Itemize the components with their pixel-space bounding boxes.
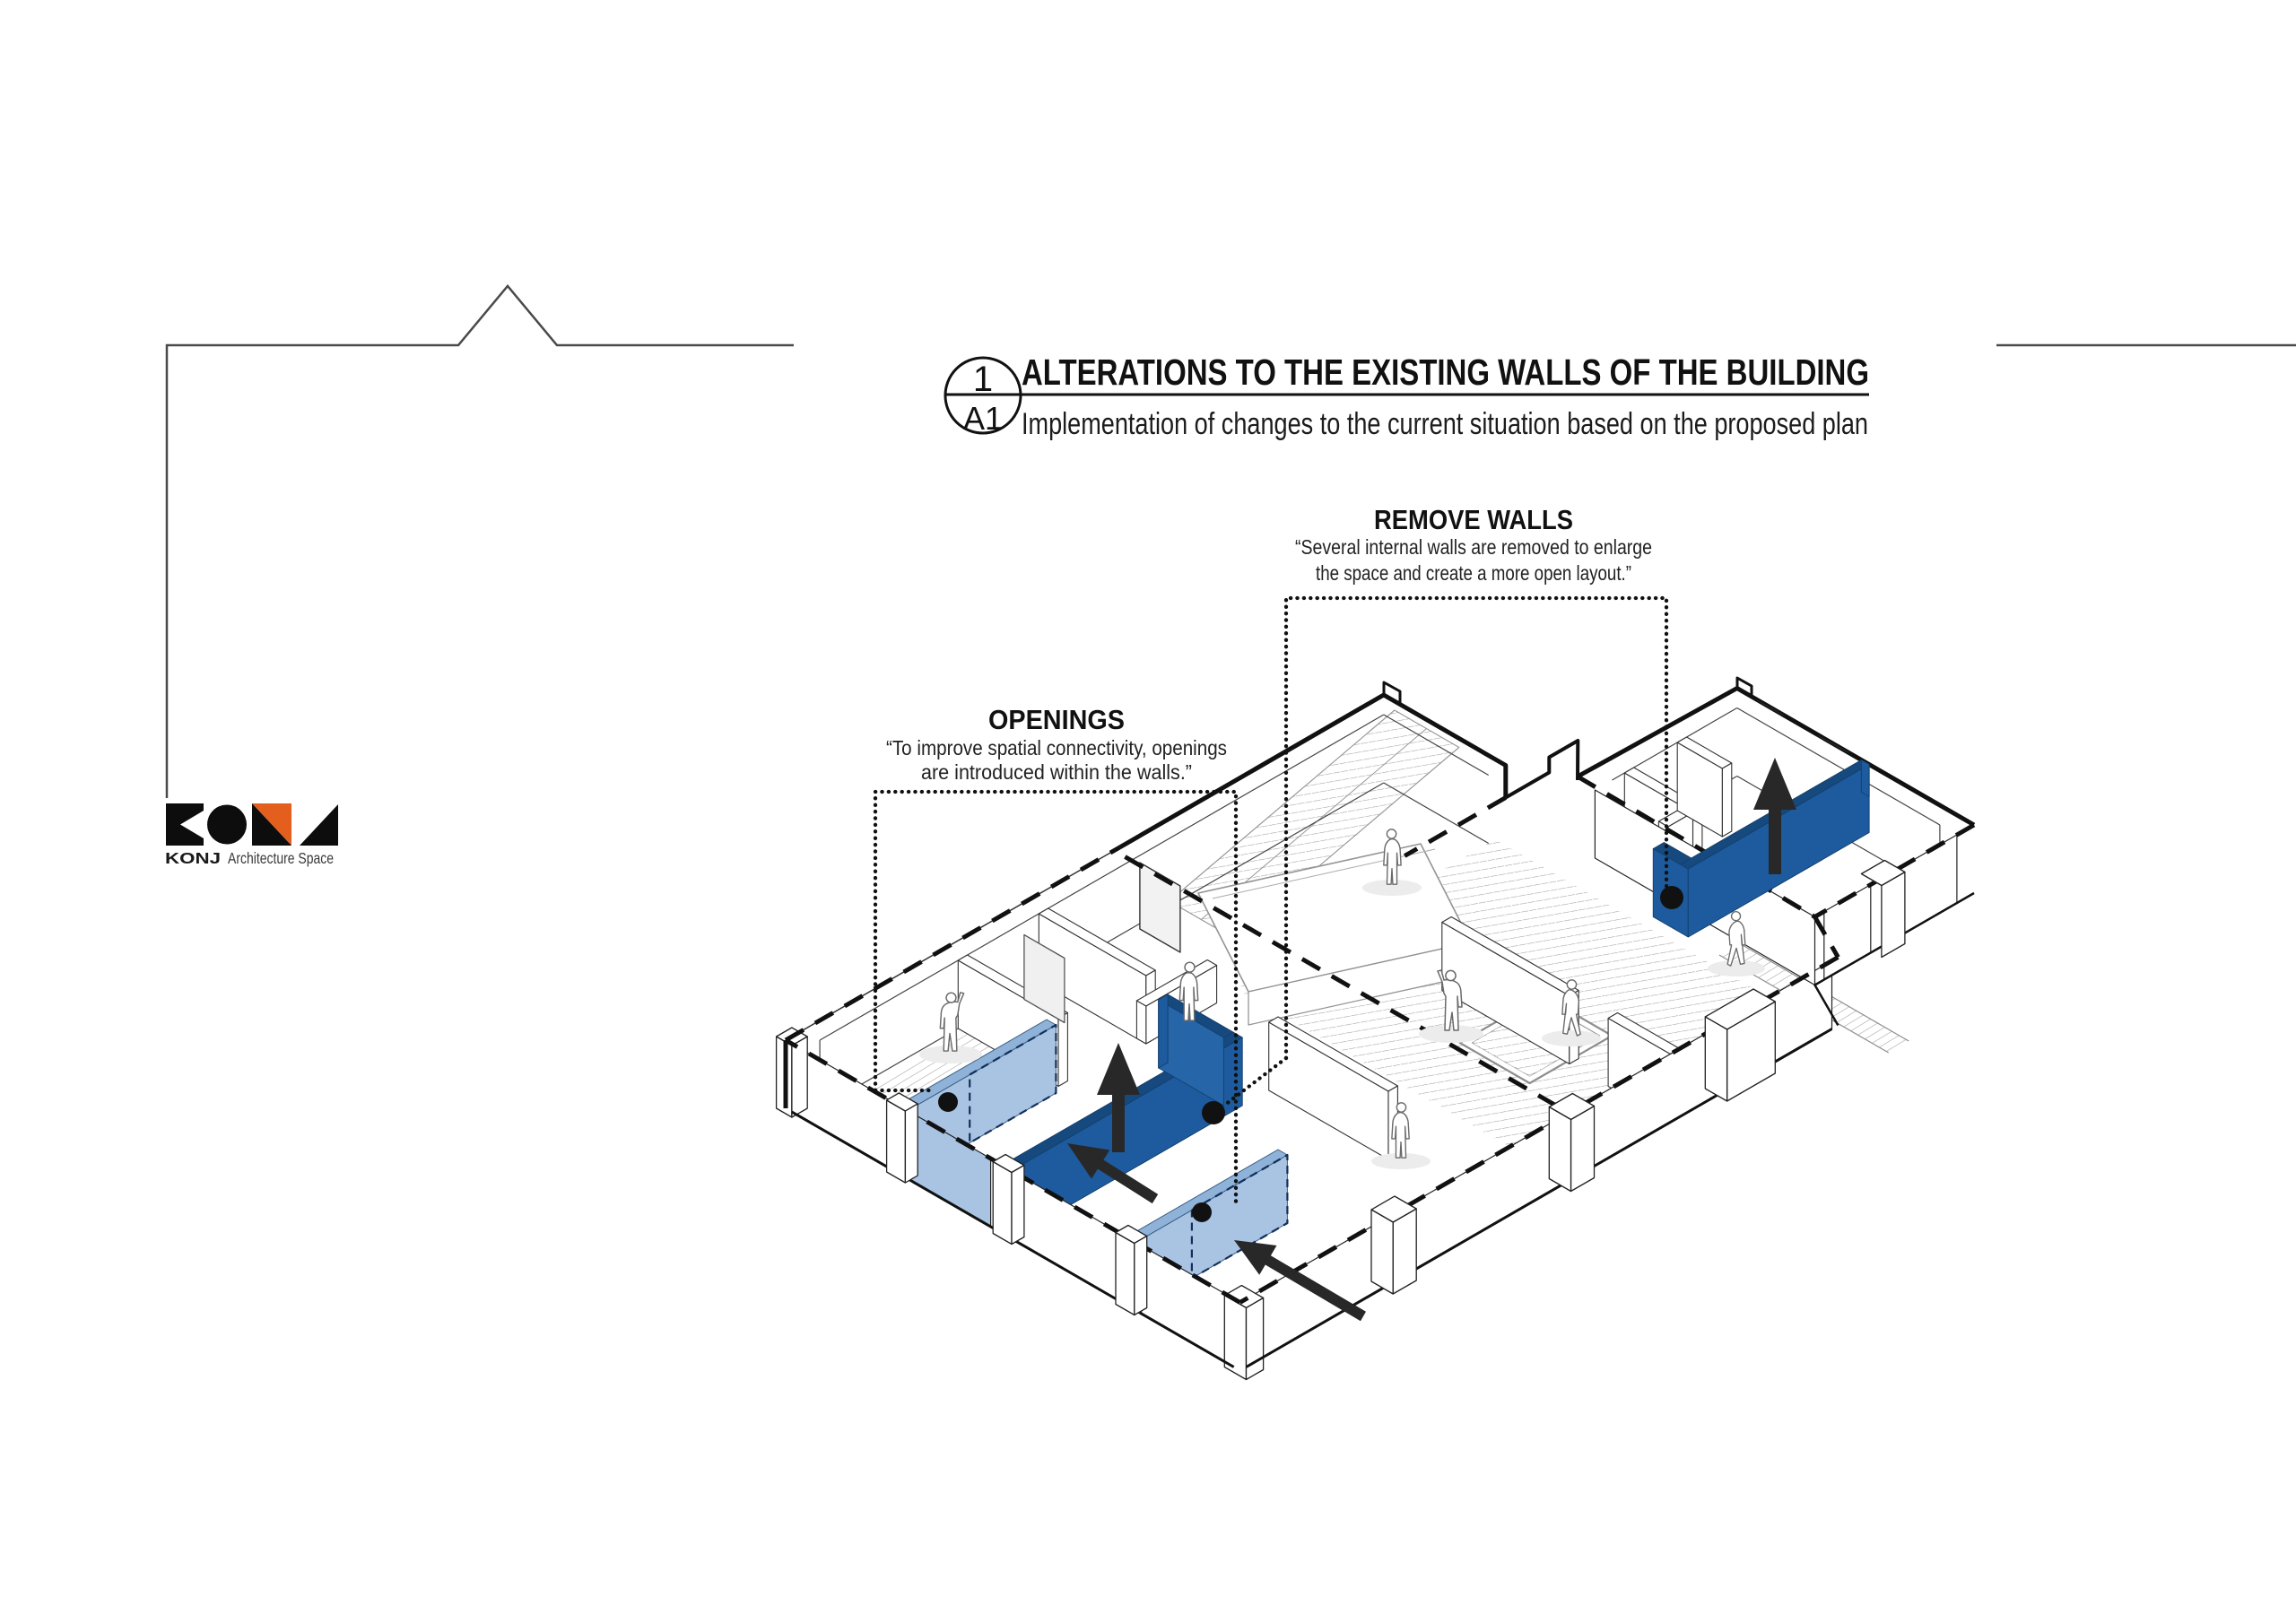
svg-text:Implementation of changes to t: Implementation of changes to the current… <box>1022 407 1868 441</box>
svg-text:“Several internal walls are re: “Several internal walls are removed to e… <box>1295 535 1652 559</box>
svg-text:KONJ: KONJ <box>165 849 221 867</box>
svg-text:A1: A1 <box>963 400 1003 437</box>
svg-text:are introduced within the wall: are introduced within the walls.” <box>921 760 1192 784</box>
svg-text:Architecture Space: Architecture Space <box>228 849 334 867</box>
svg-text:ALTERATIONS TO THE EXISTING WA: ALTERATIONS TO THE EXISTING WALLS OF THE… <box>1022 352 1869 393</box>
svg-text:the space and create a more op: the space and create a more open layout.… <box>1316 561 1631 585</box>
svg-text:1: 1 <box>973 360 993 399</box>
svg-text:“To improve spatial connectivi: “To improve spatial connectivity, openin… <box>886 736 1227 759</box>
svg-text:OPENINGS: OPENINGS <box>988 704 1125 735</box>
svg-text:REMOVE WALLS: REMOVE WALLS <box>1374 504 1573 535</box>
